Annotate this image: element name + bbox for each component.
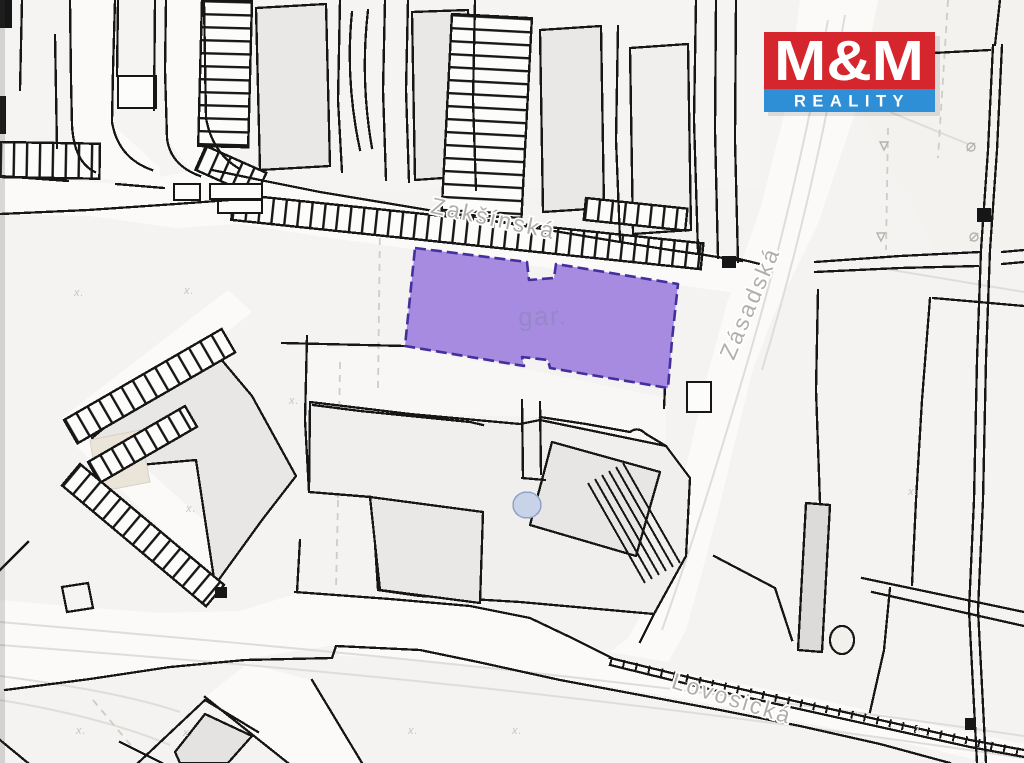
logo-tagline: REALITY bbox=[794, 93, 910, 111]
svg-text:x.: x. bbox=[182, 727, 194, 739]
logo-title: M&M bbox=[774, 29, 924, 93]
svg-text:x.: x. bbox=[907, 486, 919, 498]
svg-text:x.: x. bbox=[73, 287, 85, 299]
cadastral-map-screenshot: x. x. x. x. x. x. x. x. x. x. Zakšínská … bbox=[0, 0, 1024, 763]
svg-text:x.: x. bbox=[75, 725, 87, 737]
parcel-label-gar: gar. bbox=[517, 300, 567, 332]
svg-text:x.: x. bbox=[914, 723, 926, 735]
svg-text:x.: x. bbox=[288, 395, 300, 407]
svg-text:x.: x. bbox=[511, 725, 523, 737]
image-edge-shade bbox=[0, 0, 5, 763]
mm-reality-logo: M&M REALITY bbox=[764, 29, 940, 116]
svg-text:x.: x. bbox=[183, 285, 195, 297]
svg-text:x.: x. bbox=[185, 503, 197, 515]
cadastral-map[interactable]: x. x. x. x. x. x. x. x. x. x. Zakšínská … bbox=[0, 0, 1024, 763]
pond-icon bbox=[513, 492, 541, 518]
svg-text:x.: x. bbox=[407, 725, 419, 737]
